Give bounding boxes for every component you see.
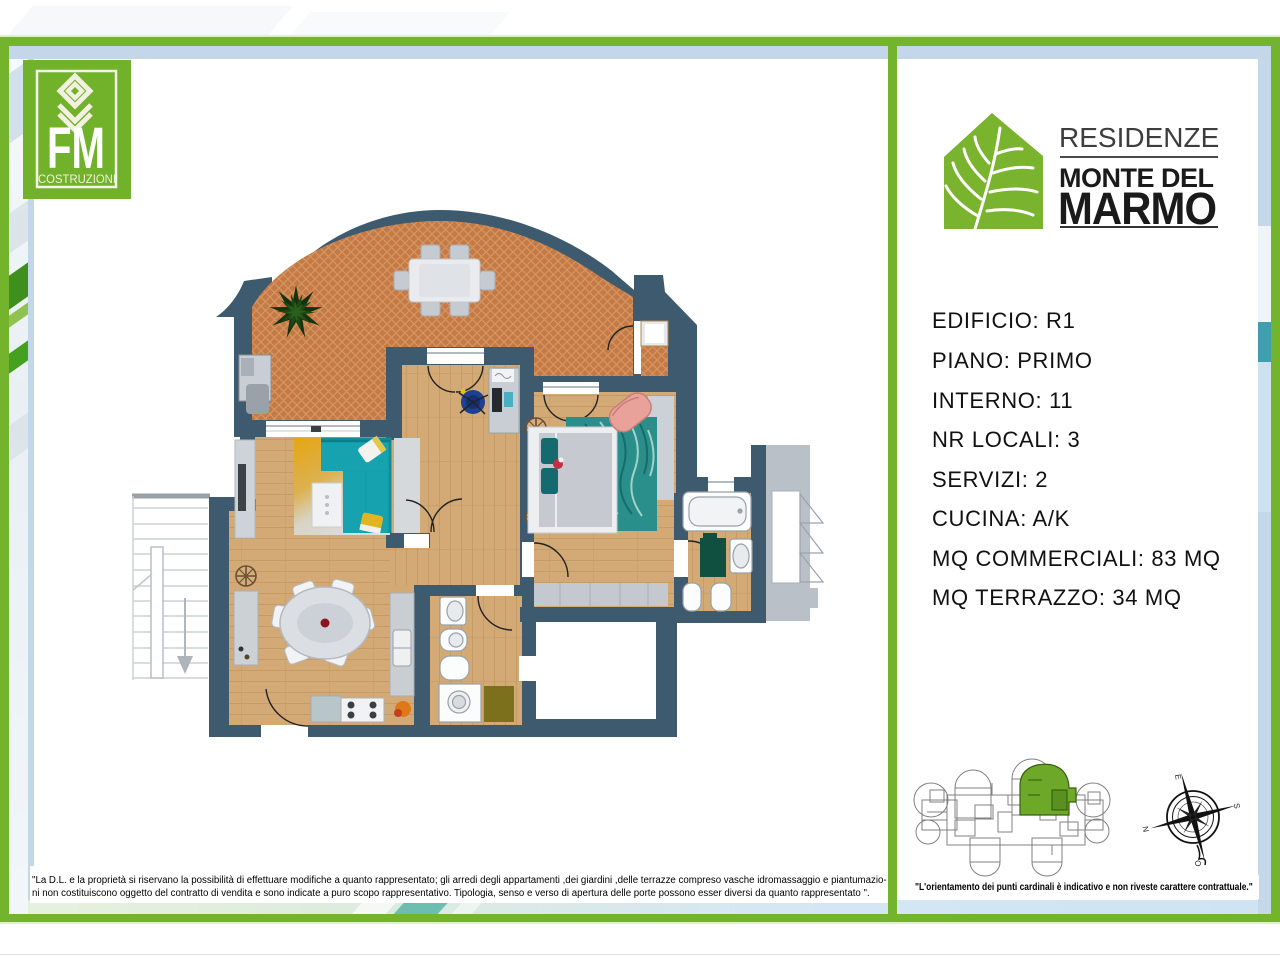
svg-text:N: N [1141, 826, 1151, 833]
svg-text:S: S [1232, 803, 1242, 810]
svg-text:O: O [1193, 860, 1203, 868]
svg-text:E: E [1173, 773, 1183, 780]
